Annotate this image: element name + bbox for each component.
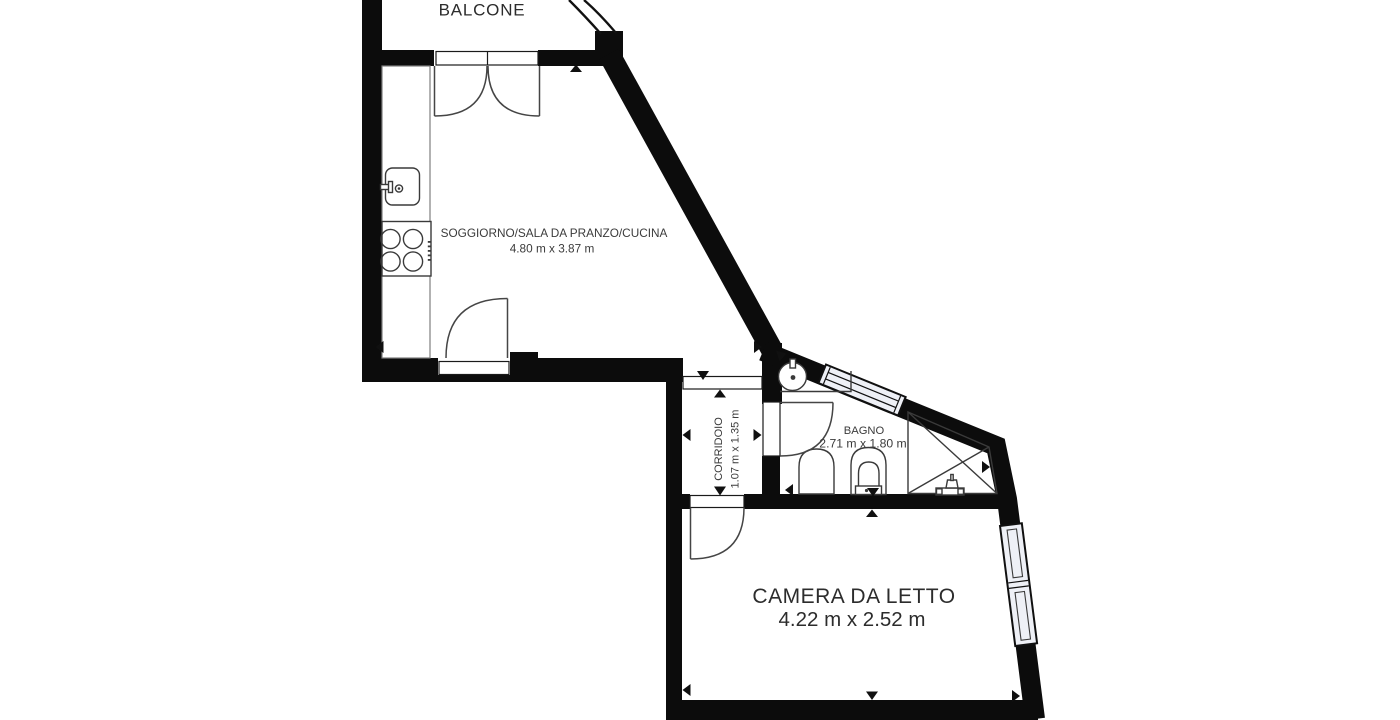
shower-mixer-icon xyxy=(936,475,964,496)
dimension-arrow-icon xyxy=(866,692,878,701)
bidet-icon xyxy=(799,449,834,494)
living-room-door-opening xyxy=(439,362,509,375)
dimension-arrow-icon xyxy=(714,390,726,398)
balcony-railing-icon xyxy=(569,0,616,34)
kitchen xyxy=(381,66,432,358)
room-dims-soggiorno: 4.80 m x 3.87 m xyxy=(510,242,595,256)
corridor-bedroom-left-wall xyxy=(666,358,682,710)
room-label-camera: CAMERA DA LETTO xyxy=(752,585,955,608)
room-label-corridoio: CORRIDOIO xyxy=(713,417,725,481)
walls xyxy=(362,0,1038,720)
kitchen-sink-icon xyxy=(381,168,420,205)
floor-plan-canvas: BALCONE SOGGIORNO/SALA DA PRANZO/CUCINA … xyxy=(0,0,1400,720)
room-label-bagno: BAGNO xyxy=(844,425,885,437)
floor-plan: BALCONE SOGGIORNO/SALA DA PRANZO/CUCINA … xyxy=(0,0,1400,720)
cooktop-icon xyxy=(381,222,431,277)
room-label-balcone: BALCONE xyxy=(439,1,526,20)
room-dims-corridoio: 1.07 m x 1.35 m xyxy=(730,410,742,489)
bathroom-door-opening xyxy=(763,402,780,456)
diagonal-wall-living xyxy=(609,54,772,350)
kitchen-counter xyxy=(382,66,430,358)
bedroom-top-wall-right xyxy=(744,494,1007,509)
living-room-door-swing-icon xyxy=(446,299,508,359)
corridor-doorway xyxy=(683,377,762,390)
toilet-icon xyxy=(851,448,886,495)
balcony-wall-right xyxy=(538,50,598,66)
bedroom-door-opening xyxy=(690,496,744,508)
living-wall-step-block xyxy=(510,352,538,382)
room-label-soggiorno: SOGGIORNO/SALA DA PRANZO/CUCINA xyxy=(441,226,668,240)
dimension-arrow-icon xyxy=(982,461,990,473)
bathroom-window-icon xyxy=(818,365,905,416)
living-door-sill xyxy=(438,375,510,382)
living-bottom-wall-left xyxy=(362,358,438,382)
dimension-arrow-icon xyxy=(866,510,878,518)
dimension-arrow-icon xyxy=(754,429,762,441)
dimension-arrow-icon xyxy=(683,684,691,696)
room-dims-camera: 4.22 m x 2.52 m xyxy=(779,608,926,631)
bedroom-bottom-wall xyxy=(666,700,1038,720)
dimension-arrow-icon xyxy=(683,429,691,441)
room-dims-bagno: 2.71 m x 1.80 m xyxy=(819,437,906,451)
room-labels: BALCONE SOGGIORNO/SALA DA PRANZO/CUCINA … xyxy=(439,1,956,632)
bedroom-window-icon xyxy=(1000,523,1037,646)
bedroom-top-wall-left xyxy=(666,494,690,509)
balcony-door-swing-icon xyxy=(435,66,540,116)
balcony-wall-left xyxy=(362,50,434,66)
corridor-bathroom-wall xyxy=(762,456,780,495)
bedroom-door-swing-icon xyxy=(691,508,745,560)
dimension-arrow-icon xyxy=(714,487,726,496)
